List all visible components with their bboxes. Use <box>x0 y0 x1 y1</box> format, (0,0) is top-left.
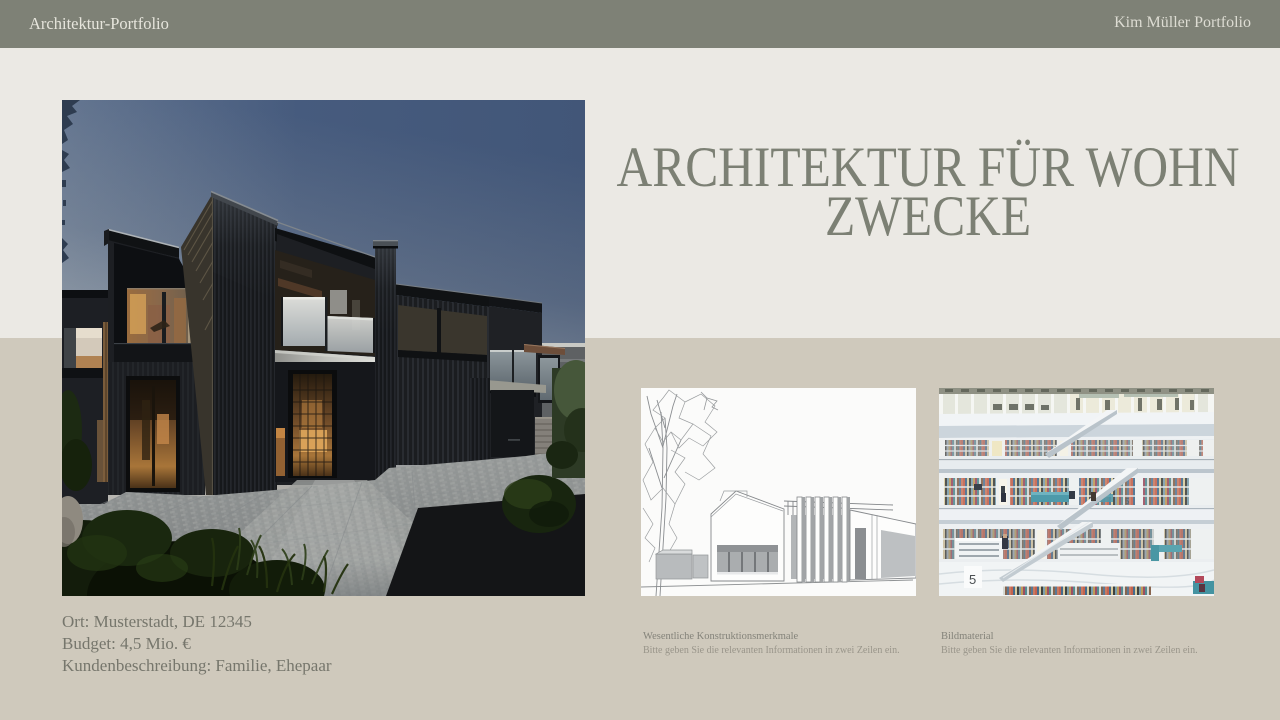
svg-text:5: 5 <box>969 572 976 587</box>
svg-text:5: 5 <box>1125 497 1130 506</box>
